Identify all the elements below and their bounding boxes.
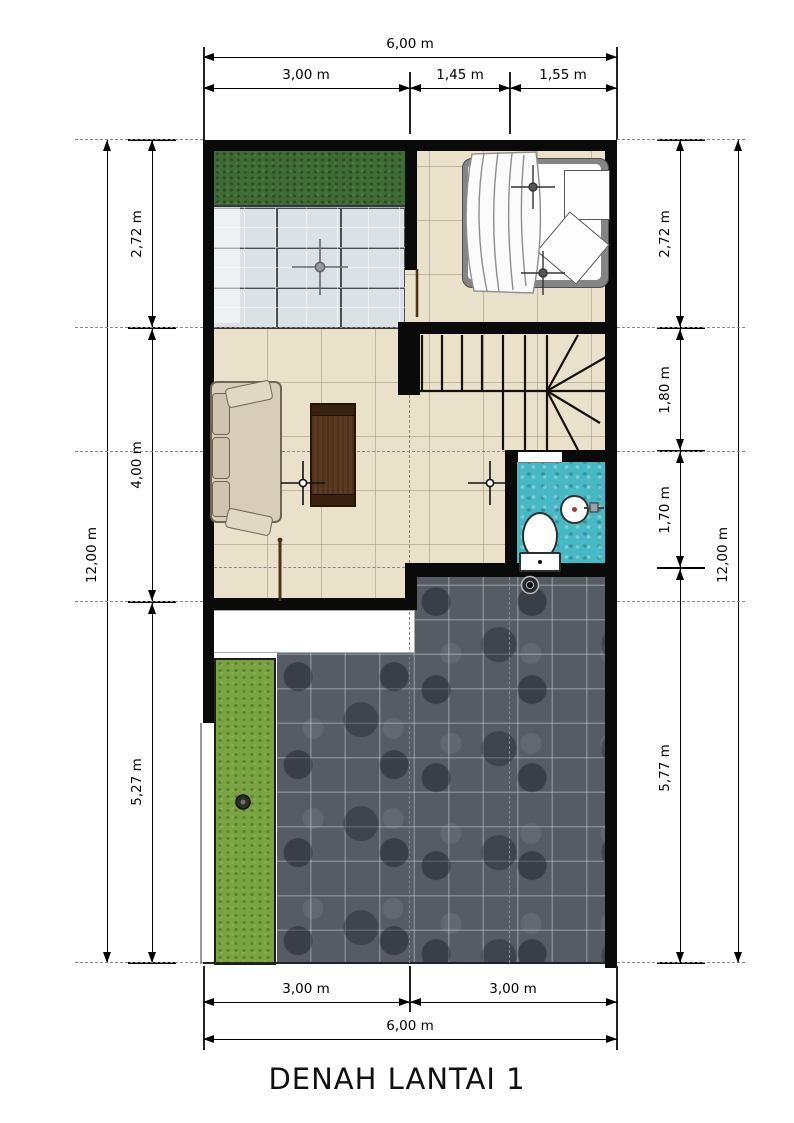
grid-line xyxy=(75,327,203,328)
wall-bath-left xyxy=(505,450,517,575)
coffee-table-icon xyxy=(310,403,356,507)
grid-line xyxy=(75,451,203,452)
dim-label: 6,00 m xyxy=(386,36,434,52)
top-garden-grass xyxy=(214,151,405,205)
plot-bottom-line xyxy=(203,962,617,964)
wall-living-bottom xyxy=(203,598,417,610)
grid-line xyxy=(617,601,745,602)
glass-canopy xyxy=(214,205,405,329)
bathroom-door-opening xyxy=(518,452,562,463)
wall-landing-bottom xyxy=(417,563,617,577)
dim-label: 1,55 m xyxy=(539,67,587,83)
dim-label: 1,80 m xyxy=(657,366,673,414)
floor-plan: 6,00 m 3,00 m 1,45 m 1,55 m 3,00 m 3,00 … xyxy=(0,0,794,1123)
dim-label: 3,00 m xyxy=(282,981,330,997)
wall-bedroom-partition xyxy=(405,151,417,270)
grid-line xyxy=(509,577,510,963)
dim-line xyxy=(107,140,108,963)
dim-label: 12,00 m xyxy=(715,527,731,583)
dim-label: 12,00 m xyxy=(84,527,100,583)
plot-left-line xyxy=(200,723,202,964)
grid-line xyxy=(617,962,745,963)
dim-line xyxy=(152,140,153,963)
wall-stair-side xyxy=(398,334,420,395)
grid-line xyxy=(214,327,398,328)
dim-line xyxy=(203,57,617,58)
grid-line xyxy=(617,139,745,140)
dim-label: 3,00 m xyxy=(489,981,537,997)
dim-line xyxy=(203,1039,617,1040)
glass-light-column xyxy=(214,207,240,323)
extension-line xyxy=(409,72,411,134)
dim-label: 1,70 m xyxy=(657,486,673,534)
side-garden-grass xyxy=(214,658,276,965)
dim-line xyxy=(680,140,681,963)
grid-line xyxy=(617,327,745,328)
dim-label: 5,77 m xyxy=(657,744,673,792)
dim-label: 4,00 m xyxy=(129,441,145,489)
carport-paving-right xyxy=(415,577,605,964)
wall-mid-horizontal xyxy=(398,322,617,334)
dim-label: 1,45 m xyxy=(436,67,484,83)
dim-label: 6,00 m xyxy=(386,1018,434,1034)
dim-line xyxy=(738,140,739,963)
grid-line xyxy=(409,612,410,963)
grid-line xyxy=(214,567,405,568)
dim-label: 5,27 m xyxy=(129,758,145,806)
page-title: DENAH LANTAI 1 xyxy=(0,1062,794,1096)
dim-label: 2,72 m xyxy=(129,210,145,258)
grid-line xyxy=(75,139,203,140)
sink-icon xyxy=(560,495,589,524)
dim-label: 3,00 m xyxy=(282,67,330,83)
grid-line xyxy=(75,962,203,963)
terrace xyxy=(213,610,415,653)
wall-top xyxy=(203,140,617,151)
toilet-tank xyxy=(519,552,561,572)
extension-line xyxy=(509,72,511,134)
grid-line xyxy=(75,601,203,602)
grid-line xyxy=(617,451,745,452)
dim-label: 2,72 m xyxy=(657,210,673,258)
carport-paving-left xyxy=(277,652,415,964)
sofa-back-cushion xyxy=(212,437,230,479)
